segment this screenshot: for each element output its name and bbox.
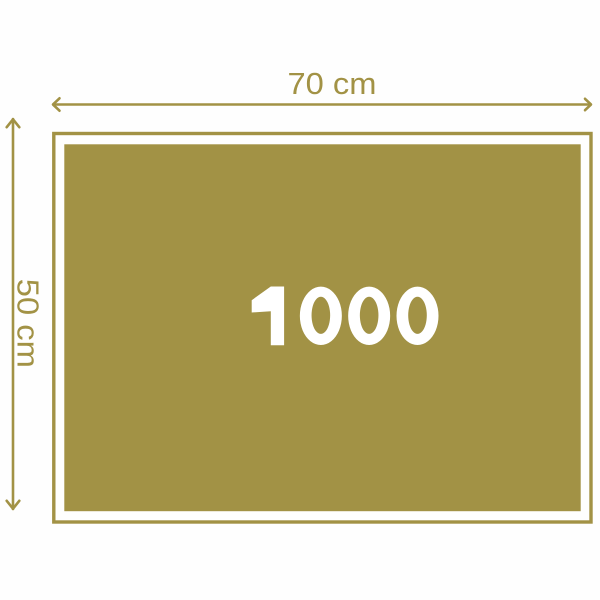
svg-text:50 cm: 50 cm (11, 279, 46, 368)
svg-text:70 cm: 70 cm (288, 66, 377, 101)
